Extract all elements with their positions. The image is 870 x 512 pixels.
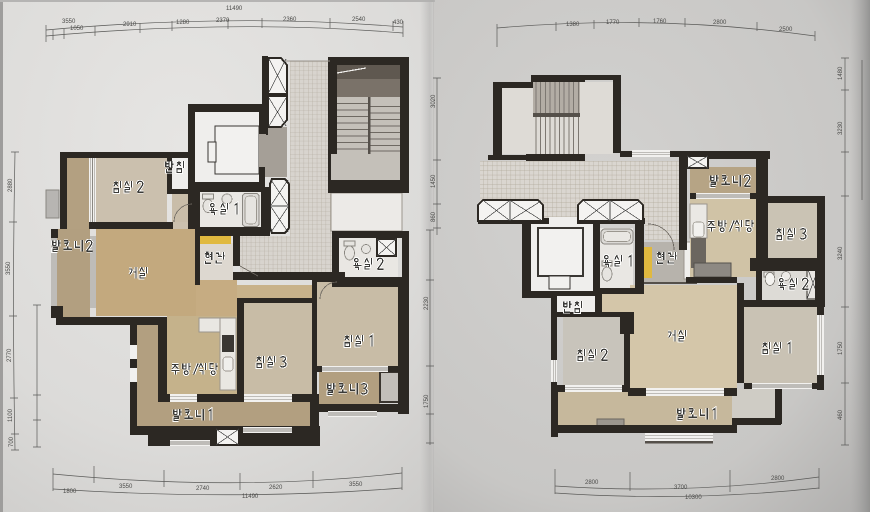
svg-text:2620: 2620 bbox=[269, 485, 283, 491]
svg-text:2800: 2800 bbox=[771, 476, 785, 482]
svg-text:1100: 1100 bbox=[8, 408, 14, 422]
svg-text:2500: 2500 bbox=[779, 27, 793, 33]
svg-text:3550: 3550 bbox=[119, 484, 133, 490]
svg-text:1750: 1750 bbox=[424, 394, 430, 408]
svg-text:1770: 1770 bbox=[606, 20, 620, 26]
svg-text:860: 860 bbox=[431, 211, 437, 222]
svg-text:10300: 10300 bbox=[685, 495, 702, 501]
svg-text:700: 700 bbox=[9, 436, 15, 447]
svg-text:11490: 11490 bbox=[242, 494, 259, 500]
svg-text:2800: 2800 bbox=[585, 480, 599, 486]
svg-text:11490: 11490 bbox=[226, 6, 243, 12]
svg-text:1450: 1450 bbox=[431, 174, 437, 188]
svg-text:3240: 3240 bbox=[838, 246, 844, 260]
svg-text:2360: 2360 bbox=[283, 17, 297, 23]
svg-text:3550: 3550 bbox=[6, 261, 12, 275]
svg-text:1750: 1750 bbox=[838, 341, 844, 355]
svg-text:460: 460 bbox=[838, 409, 844, 420]
svg-text:3700: 3700 bbox=[674, 485, 688, 491]
svg-text:2800: 2800 bbox=[713, 20, 727, 26]
svg-text:1050: 1050 bbox=[70, 26, 84, 32]
svg-text:2880: 2880 bbox=[8, 178, 14, 192]
svg-text:3230: 3230 bbox=[838, 121, 844, 135]
svg-text:3550: 3550 bbox=[62, 19, 76, 25]
svg-text:1800: 1800 bbox=[63, 489, 77, 495]
svg-text:2910: 2910 bbox=[123, 22, 137, 28]
svg-text:2540: 2540 bbox=[352, 17, 366, 23]
svg-text:1280: 1280 bbox=[176, 20, 190, 26]
svg-text:2230: 2230 bbox=[424, 296, 430, 310]
svg-text:1380: 1380 bbox=[566, 22, 580, 28]
svg-text:1480: 1480 bbox=[838, 66, 844, 80]
svg-text:3020: 3020 bbox=[431, 94, 437, 108]
svg-text:3550: 3550 bbox=[349, 482, 363, 488]
svg-text:1760: 1760 bbox=[653, 19, 667, 25]
svg-text:2740: 2740 bbox=[196, 486, 210, 492]
svg-text:2370: 2370 bbox=[216, 18, 230, 24]
svg-text:2770: 2770 bbox=[7, 348, 13, 362]
svg-text:430: 430 bbox=[393, 20, 404, 26]
